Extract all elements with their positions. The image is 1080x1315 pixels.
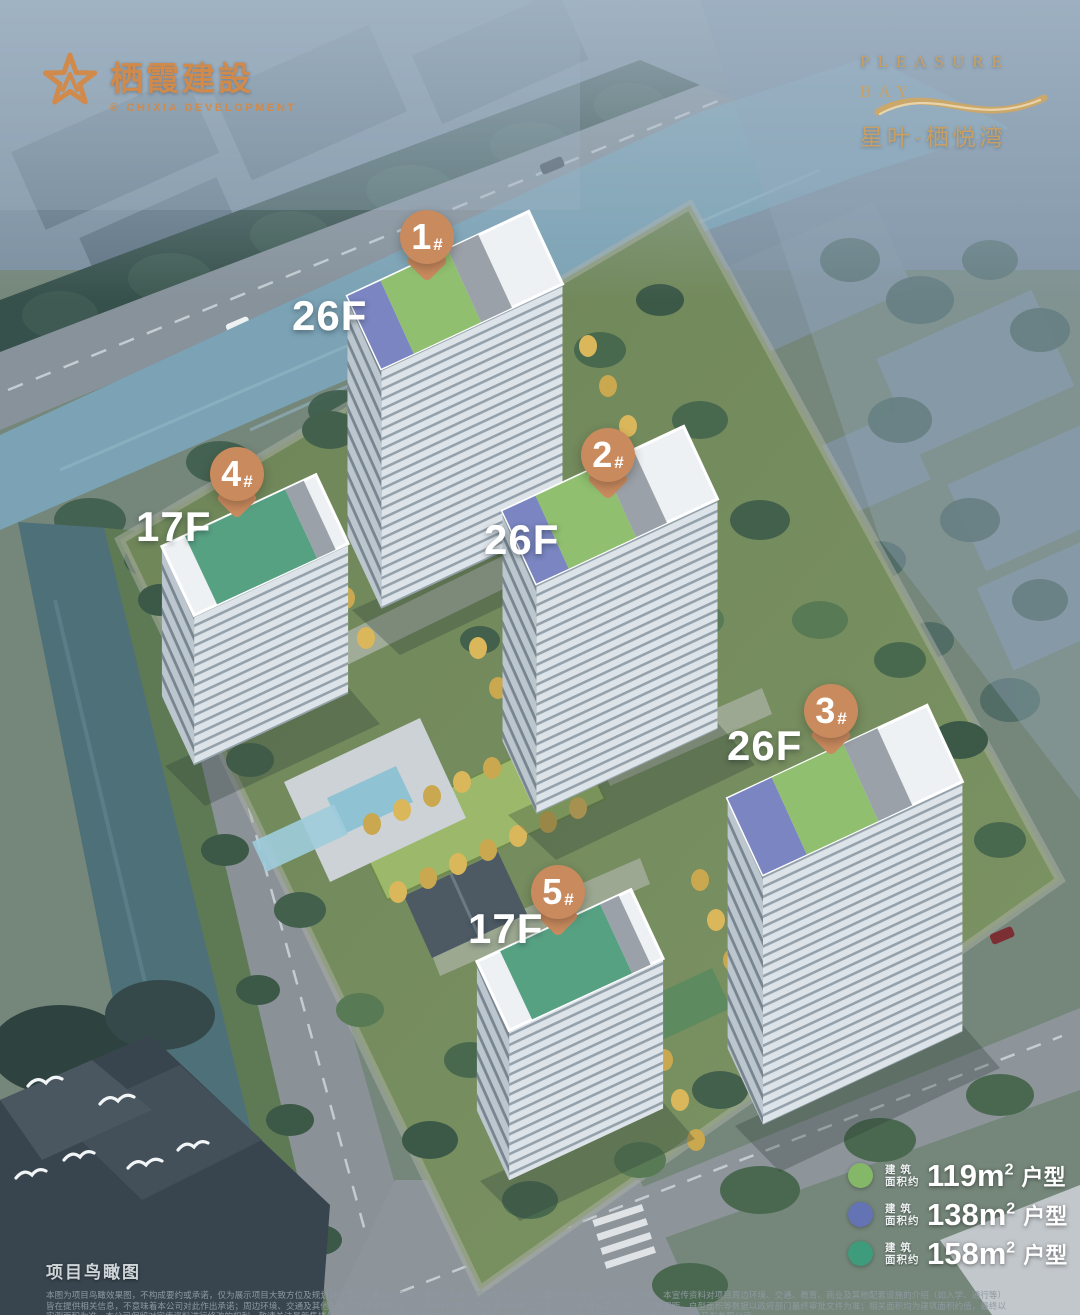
wave-swoosh-icon <box>874 70 1049 140</box>
registered-mark: ® <box>110 102 121 114</box>
project-logo: PLEASURE BAY 星叶·栖悦湾 <box>860 52 1050 152</box>
aerial-scene <box>0 0 1080 1315</box>
marker-head: 1 # <box>400 210 454 264</box>
unit-color-dot <box>848 1202 873 1227</box>
page-title: 项目鸟瞰图 <box>46 1258 1006 1283</box>
disclaimer-text: 本图为项目鸟瞰效果图，不构成要约或承诺，仅为展示项目大致方位及规划设计意向，最终… <box>46 1290 1006 1315</box>
legend-item-138: 建 筑 面积约 138m2 户型 <box>848 1195 1067 1234</box>
unit-type-legend: 建 筑 面积约 119m2 户型 建 筑 面积约 138m2 户型 建 筑 面积… <box>848 1156 1067 1273</box>
developer-name-en: ® CHIXIA DEVELOPMENT <box>110 102 297 114</box>
developer-name-zh: 栖霞建設 <box>110 52 297 100</box>
unit-color-dot <box>848 1163 873 1188</box>
floors-label-5: 17F <box>468 905 543 953</box>
aerial-render-poster: 栖霞建設 ® CHIXIA DEVELOPMENT PLEASURE BAY 星… <box>0 0 1080 1315</box>
floors-label-1: 26F <box>292 292 367 340</box>
building-marker-3: 3 # <box>799 684 863 770</box>
building-marker-2: 2 # <box>576 428 640 514</box>
floors-label-3: 26F <box>727 722 802 770</box>
star-logo-icon <box>42 52 98 108</box>
marker-head: 2 # <box>581 428 635 482</box>
legend-area-label: 建 筑 面积约 <box>885 1203 927 1227</box>
legend-area-label: 建 筑 面积约 <box>885 1164 927 1188</box>
building-marker-1: 1 # <box>395 210 459 296</box>
legend-area-value: 138m2 <box>927 1199 1015 1230</box>
building-marker-4: 4 # <box>205 447 269 533</box>
floors-label-4: 17F <box>136 503 211 551</box>
legend-unit-type: 户型 <box>1021 1160 1065 1192</box>
legend-unit-type: 户型 <box>1023 1199 1067 1231</box>
legend-item-119: 建 筑 面积约 119m2 户型 <box>848 1156 1067 1195</box>
footer: 项目鸟瞰图 本图为项目鸟瞰效果图，不构成要约或承诺，仅为展示项目大致方位及规划设… <box>46 1258 1006 1315</box>
project-name-en-line1: PLEASURE <box>860 52 1050 72</box>
legend-unit-type: 户型 <box>1023 1238 1067 1270</box>
floors-label-2: 26F <box>484 516 559 564</box>
marker-head: 4 # <box>210 447 264 501</box>
developer-logo: 栖霞建設 ® CHIXIA DEVELOPMENT <box>42 52 297 114</box>
marker-head: 3 # <box>804 684 858 738</box>
legend-area-value: 119m2 <box>927 1160 1013 1191</box>
